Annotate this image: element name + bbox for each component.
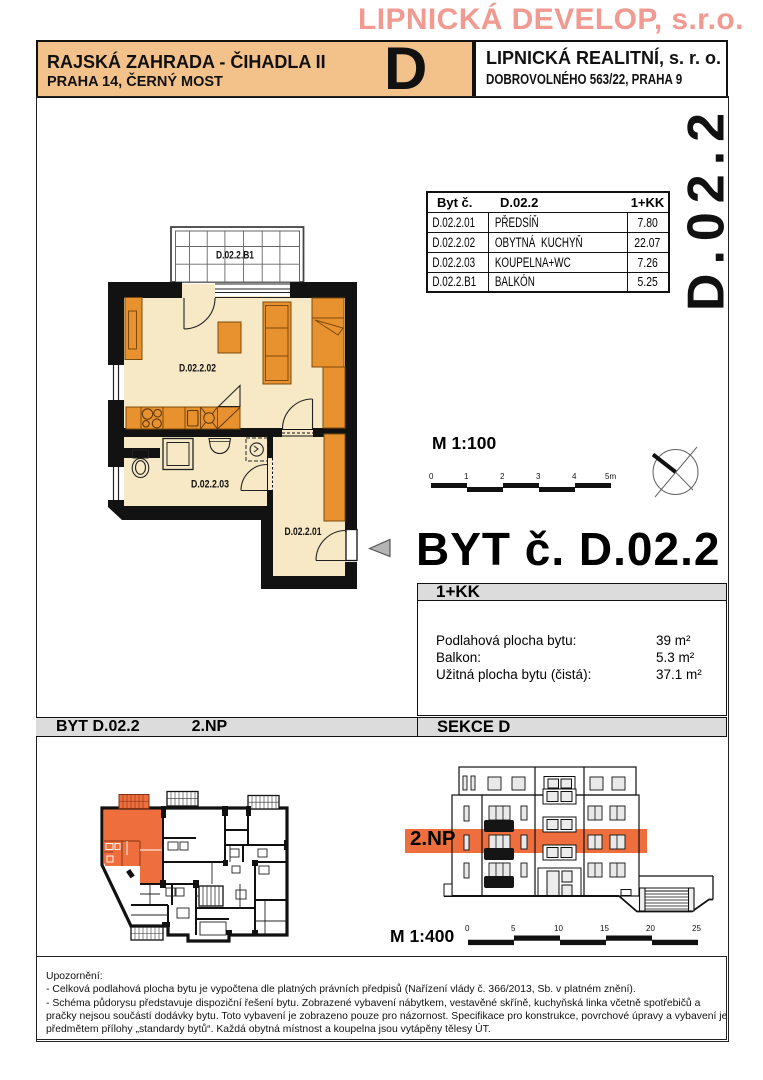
svg-text:20: 20 xyxy=(646,924,655,933)
svg-text:15: 15 xyxy=(600,924,609,933)
svg-text:D.02.2.01: D.02.2.01 xyxy=(285,526,322,538)
svg-text:5: 5 xyxy=(511,924,516,933)
svg-text:D.02.2.03: D.02.2.03 xyxy=(191,479,229,491)
svg-text:0: 0 xyxy=(429,472,434,481)
svg-text:1: 1 xyxy=(464,472,469,481)
svg-text:25: 25 xyxy=(692,924,701,933)
svg-text:10: 10 xyxy=(554,924,563,933)
svg-text:4: 4 xyxy=(572,472,577,481)
svg-text:0: 0 xyxy=(465,924,470,933)
svg-text:D.02.2.B1: D.02.2.B1 xyxy=(216,250,254,262)
svg-text:2: 2 xyxy=(500,472,505,481)
svg-text:5m: 5m xyxy=(605,472,616,481)
svg-text:3: 3 xyxy=(536,472,541,481)
svg-text:D.02.2.02: D.02.2.02 xyxy=(179,363,216,375)
